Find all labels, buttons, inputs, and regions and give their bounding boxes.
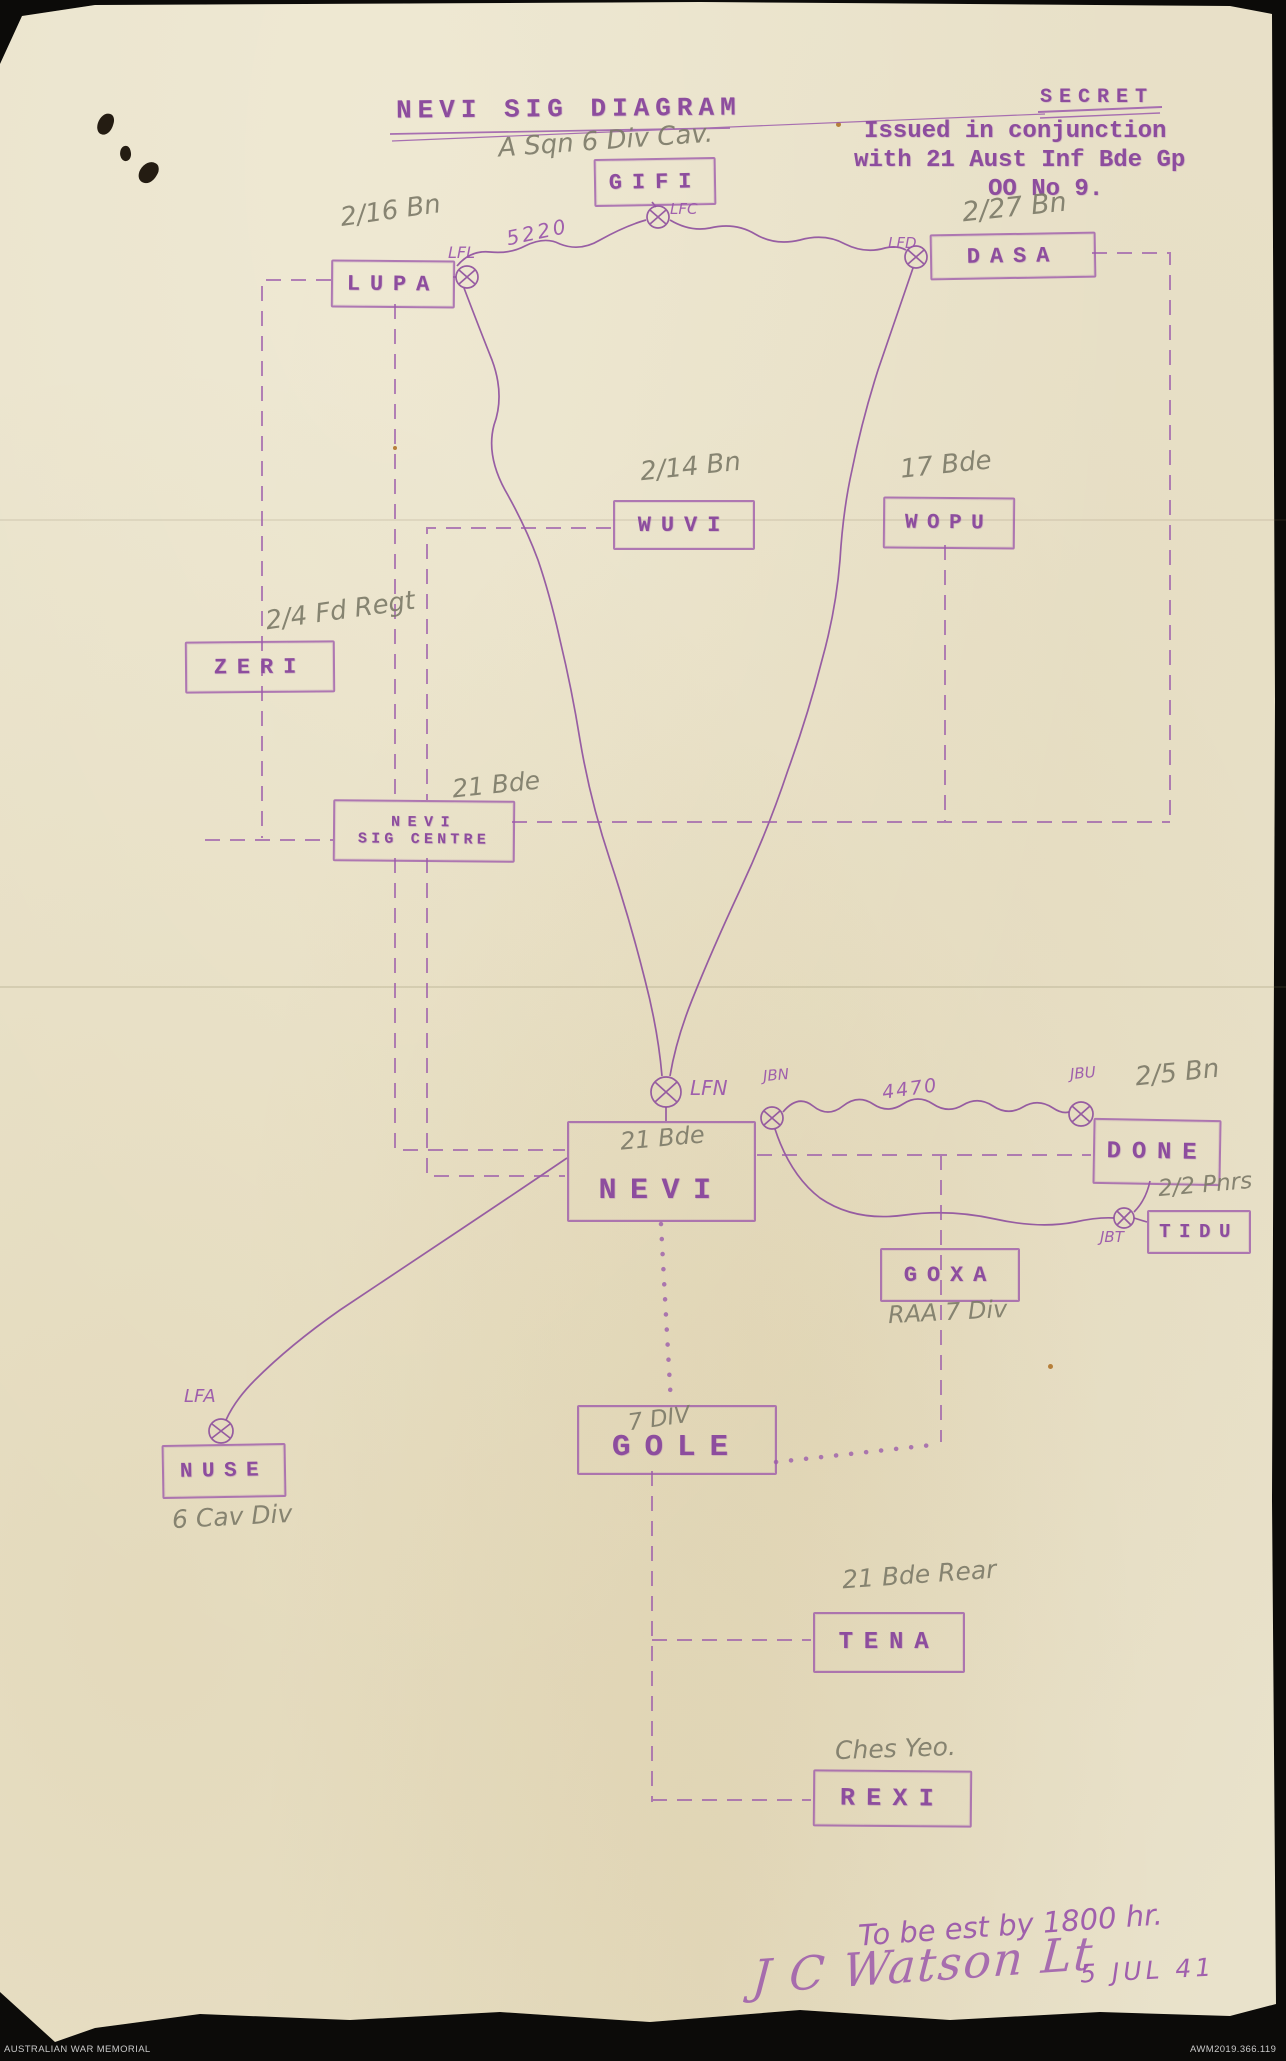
station-label: DONE bbox=[1106, 1138, 1207, 1167]
rust-spot bbox=[393, 446, 397, 450]
paper-sheet bbox=[0, 0, 1286, 2061]
station-box-nevi-sig-centre: NEVI SIG CENTRE bbox=[333, 799, 516, 863]
station-label: WUVI bbox=[638, 513, 730, 538]
station-box-wopu: WOPU bbox=[883, 496, 1015, 549]
station-label: TIDU bbox=[1159, 1221, 1239, 1243]
station-label: REXI bbox=[840, 1784, 945, 1814]
station-box-zeri: ZERI bbox=[185, 640, 335, 693]
station-label-line1: NEVI bbox=[391, 813, 457, 831]
rust-spot bbox=[1048, 1364, 1053, 1369]
station-box-lupa: LUPA bbox=[331, 259, 455, 308]
station-label: WOPU bbox=[905, 511, 993, 535]
station-label: TENA bbox=[839, 1629, 940, 1656]
issue-note-line2: with 21 Aust Inf Bde Gp bbox=[854, 147, 1185, 174]
terminal-label-lfd: LFD bbox=[888, 234, 917, 252]
station-label: GIFI bbox=[609, 169, 702, 196]
station-box-wuvi: WUVI bbox=[613, 500, 755, 550]
terminal-label-jbu: JBU bbox=[1069, 1063, 1096, 1083]
terminal-label-lfa: LFA bbox=[184, 1386, 216, 1407]
station-box-tidu: TIDU bbox=[1147, 1210, 1251, 1254]
station-box-nuse: NUSE bbox=[162, 1443, 287, 1499]
station-label: LUPA bbox=[347, 271, 440, 297]
archive-accession-number: AWM2019.366.119 bbox=[1190, 2044, 1276, 2055]
station-label: GOXA bbox=[904, 1263, 996, 1288]
station-label-line2: SIG CENTRE bbox=[358, 830, 490, 848]
station-label: DASA bbox=[967, 243, 1060, 270]
rust-spot bbox=[836, 122, 841, 127]
classification-stamp: SECRET bbox=[1040, 86, 1154, 109]
terminal-label-lfc: LFC bbox=[670, 200, 697, 218]
terminal-label-jbt: JBT bbox=[1100, 1228, 1124, 1246]
station-box-rexi: REXI bbox=[813, 1769, 972, 1827]
station-box-goxa: GOXA bbox=[880, 1248, 1020, 1302]
station-label: ZERI bbox=[214, 654, 307, 680]
annotation-rexi: Ches Yeo. bbox=[835, 1732, 957, 1765]
issue-note-line1: Issued in conjunction bbox=[864, 118, 1166, 145]
station-box-dasa: DASA bbox=[930, 232, 1097, 281]
scanned-document: NEVI SIG DIAGRAM SECRET Issued in conjun… bbox=[0, 0, 1286, 2061]
station-label: NEVI bbox=[598, 1174, 724, 1208]
station-box-gifi: GIFI bbox=[594, 157, 717, 207]
station-label: NUSE bbox=[180, 1459, 269, 1484]
archive-institution-label: AUSTRALIAN WAR MEMORIAL bbox=[4, 2044, 151, 2055]
terminal-label-jbn: JBN bbox=[762, 1065, 789, 1085]
terminal-label-lfn: LFN bbox=[690, 1076, 728, 1100]
station-box-tena: TENA bbox=[813, 1612, 965, 1673]
terminal-label-lfl: LFL bbox=[448, 243, 475, 262]
